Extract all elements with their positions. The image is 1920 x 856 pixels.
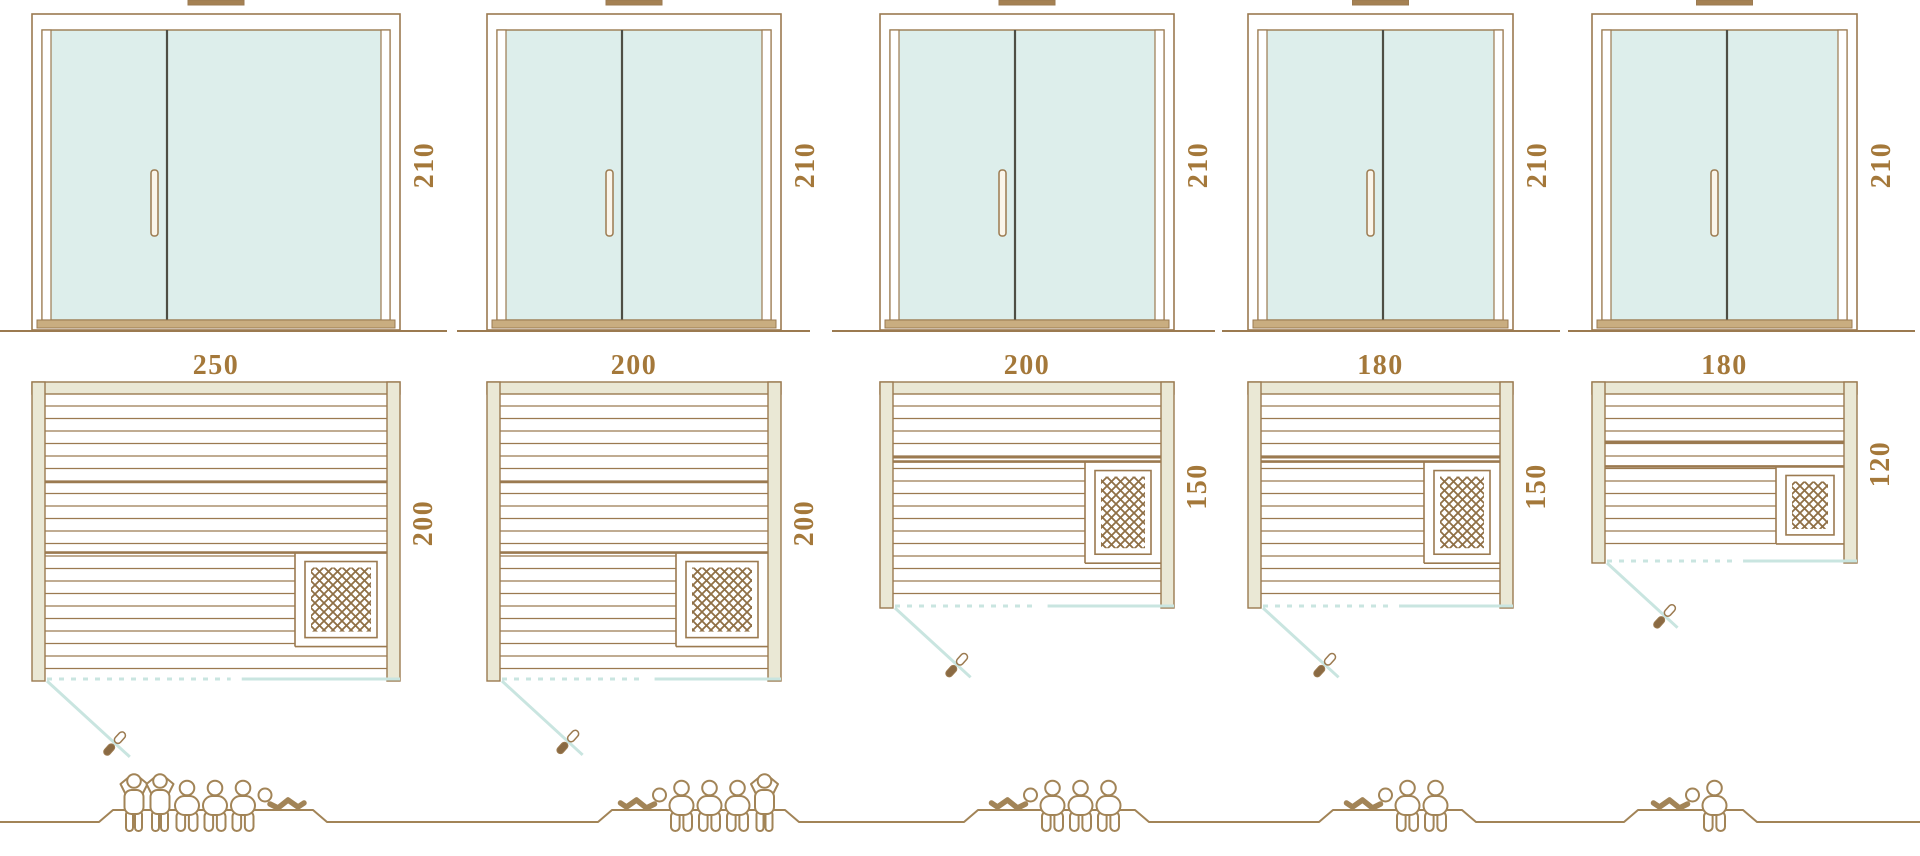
roof-vent <box>999 0 1055 5</box>
door-stile-right <box>381 30 390 320</box>
sitting-person-icon <box>726 781 750 831</box>
width-label: 180 <box>1701 350 1748 381</box>
plan-wall-right <box>387 382 400 681</box>
door-threshold <box>1597 320 1852 328</box>
capacity-icons <box>1654 781 1727 831</box>
plan-wall-left <box>880 382 893 608</box>
plan-wall-left <box>1248 382 1261 608</box>
floor-plan <box>32 382 400 757</box>
door-stile-left <box>1258 30 1267 320</box>
sauna-column-1: 210250200 <box>0 0 447 831</box>
door-threshold <box>1253 320 1508 328</box>
door-front-elevation <box>32 0 400 330</box>
lying-person-icon <box>992 789 1038 809</box>
capacity-icons <box>992 781 1121 831</box>
plan-wall-top <box>1592 382 1857 394</box>
door-glass <box>1602 30 1847 320</box>
door-front-elevation <box>1592 0 1857 330</box>
width-label: 200 <box>611 350 658 381</box>
sauna-column-2: 210200200 <box>457 0 821 831</box>
door-swing-line <box>47 681 130 757</box>
door-front-elevation <box>1248 0 1513 330</box>
door-threshold <box>885 320 1169 328</box>
heater-grid-icon <box>1101 477 1145 549</box>
door-handle <box>606 170 613 236</box>
heater-grid-icon <box>311 568 371 632</box>
sitting-person-icon <box>175 781 199 831</box>
floor-plan <box>1592 382 1857 630</box>
heater-grid-icon <box>692 568 752 632</box>
door-stile-left <box>497 30 506 320</box>
plan-wall-right <box>1161 382 1174 608</box>
sitting-person-icon <box>1703 781 1727 831</box>
door-stile-right <box>1155 30 1164 320</box>
capacity-icons <box>1347 781 1448 831</box>
heater-grid-icon <box>1440 477 1484 549</box>
sitting-person-icon <box>1041 781 1065 831</box>
sauna-column-5: 210180120 <box>1568 0 1915 831</box>
plan-wall-top <box>1248 382 1513 394</box>
plan-wall-top <box>487 382 781 394</box>
plan-wall-right <box>1500 382 1513 608</box>
door-glass <box>497 30 771 320</box>
plan-wall-right <box>768 382 781 681</box>
door-stile-right <box>1494 30 1503 320</box>
roof-vent <box>188 0 244 5</box>
sitting-person-icon <box>670 781 694 831</box>
sitting-person-icon <box>698 781 722 831</box>
capacity-baseline <box>0 810 1920 822</box>
standing-person-icon <box>147 774 174 831</box>
door-swing-line <box>1263 608 1339 677</box>
plan-wall-right <box>1844 382 1857 563</box>
sauna-size-comparison-diagram: 2102502002102002002102001502101801502101… <box>0 0 1920 856</box>
plan-wall-left <box>487 382 500 681</box>
capacity-icons <box>621 774 779 831</box>
lying-person-icon <box>1654 789 1700 809</box>
standing-person-icon <box>121 774 148 831</box>
door-stile-right <box>1838 30 1847 320</box>
width-label: 250 <box>193 350 240 381</box>
door-swing-line <box>1607 563 1678 628</box>
door-stile-left <box>890 30 899 320</box>
roof-vent <box>1353 0 1409 5</box>
sitting-person-icon <box>203 781 227 831</box>
door-handle <box>1711 170 1718 236</box>
door-glass <box>1258 30 1503 320</box>
sitting-person-icon <box>231 781 255 831</box>
diagram-scene: 2102502002102002002102001502101801502101… <box>0 0 1920 856</box>
door-swing-line <box>895 608 971 677</box>
plan-wall-left <box>32 382 45 681</box>
capacity-icons <box>121 774 305 831</box>
sauna-column-4: 210180150 <box>1222 0 1560 831</box>
door-height-label: 210 <box>1183 142 1214 189</box>
roof-vent <box>606 0 662 5</box>
depth-label: 150 <box>1182 463 1213 510</box>
door-stile-right <box>762 30 771 320</box>
floor-plan <box>880 382 1174 678</box>
heater-grid-icon <box>1792 481 1828 528</box>
plan-wall-top <box>880 382 1174 394</box>
sitting-person-icon <box>1069 781 1093 831</box>
floor-plan <box>1248 382 1513 678</box>
depth-label: 200 <box>408 500 439 547</box>
width-label: 200 <box>1004 350 1051 381</box>
sitting-person-icon <box>1424 781 1448 831</box>
floor-plan <box>487 382 781 755</box>
door-height-label: 210 <box>1522 142 1553 189</box>
depth-label: 150 <box>1521 463 1552 510</box>
plan-wall-left <box>1592 382 1605 563</box>
depth-label: 120 <box>1865 441 1896 488</box>
door-handle <box>151 170 158 236</box>
door-handle <box>999 170 1006 236</box>
sitting-person-icon <box>1097 781 1121 831</box>
depth-label: 200 <box>789 500 820 547</box>
lying-person-icon <box>259 789 305 809</box>
door-front-elevation <box>487 0 781 330</box>
door-height-label: 210 <box>409 142 440 189</box>
standing-person-icon <box>751 774 778 831</box>
door-glass <box>42 30 390 320</box>
sitting-person-icon <box>1396 781 1420 831</box>
door-swing-line <box>502 681 583 755</box>
door-handle <box>1367 170 1374 236</box>
lying-person-icon <box>1347 789 1393 809</box>
roof-vent <box>1697 0 1753 5</box>
sauna-column-3: 210200150 <box>832 0 1215 831</box>
door-front-elevation <box>880 0 1174 330</box>
door-height-label: 210 <box>1866 142 1897 189</box>
door-threshold <box>492 320 776 328</box>
door-stile-left <box>42 30 51 320</box>
door-stile-left <box>1602 30 1611 320</box>
lying-person-icon <box>621 789 667 809</box>
door-glass <box>890 30 1164 320</box>
plan-wall-top <box>32 382 400 394</box>
width-label: 180 <box>1357 350 1404 381</box>
door-height-label: 210 <box>790 142 821 189</box>
door-threshold <box>37 320 395 328</box>
